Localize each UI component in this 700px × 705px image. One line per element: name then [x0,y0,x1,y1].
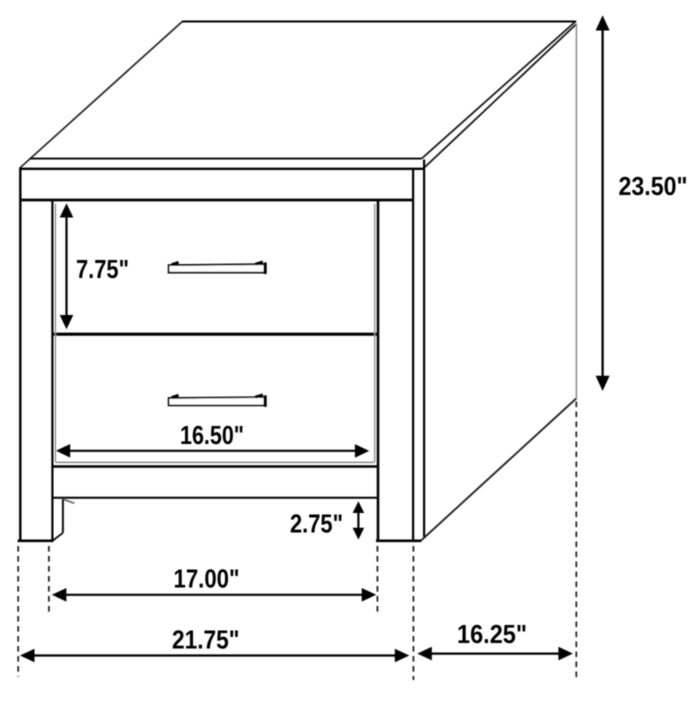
svg-text:21.75": 21.75" [172,624,240,654]
svg-text:17.00": 17.00" [174,563,240,593]
svg-text:16.25": 16.25" [457,619,527,649]
svg-text:23.50": 23.50" [619,171,688,201]
svg-text:16.50": 16.50" [180,420,244,450]
svg-text:7.75": 7.75" [76,254,129,284]
svg-text:2.75": 2.75" [290,509,343,539]
